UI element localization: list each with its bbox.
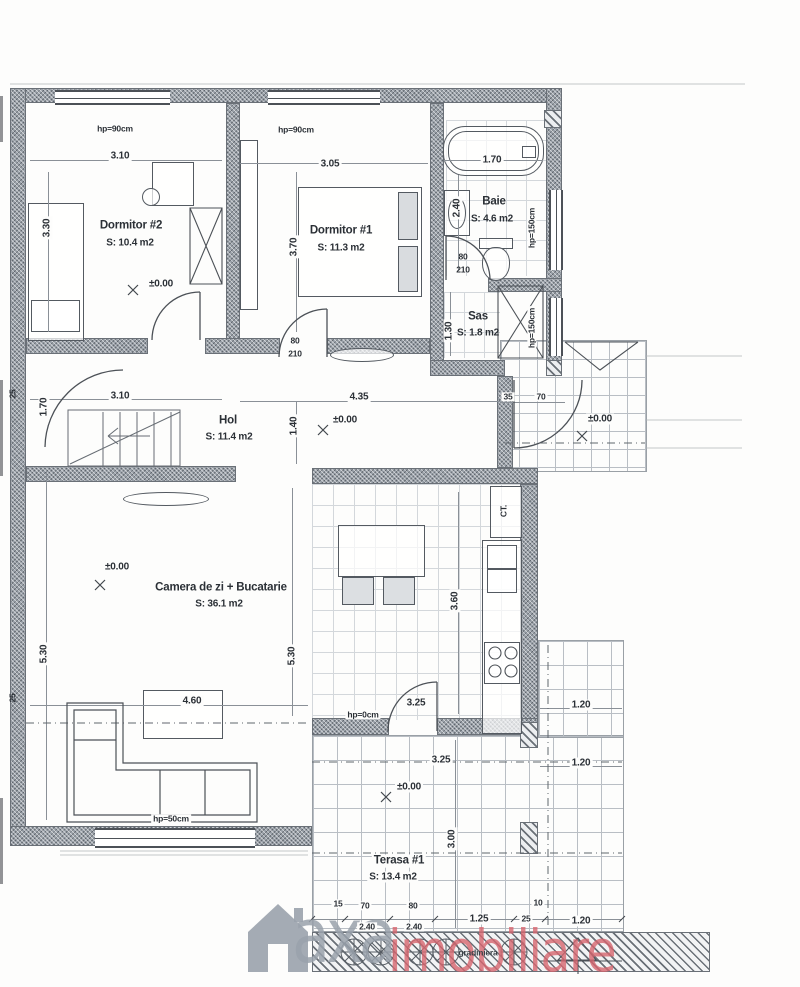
level-marker: [381, 792, 391, 802]
dim-door-baie-height: 210: [456, 265, 470, 274]
room-area-dormitor1: S: 11.3 m2: [318, 243, 365, 254]
dim-entry-jamb: 35: [501, 392, 514, 401]
dim-terasa-width: 3.25: [430, 755, 453, 766]
dim-entry-door: 70: [534, 392, 547, 401]
dim-sas-depth: 1.30: [444, 320, 455, 343]
dim-bottom-240a: 2.40: [357, 922, 377, 931]
dim-terasa-side-1: 1.20: [570, 700, 593, 711]
dim-edge-25a: 25: [8, 389, 17, 398]
cooktop-burner: [505, 647, 517, 659]
room-name-baie: Baie: [482, 196, 506, 209]
parapet-dormitor2: hp=90cm: [97, 124, 133, 133]
wardrobe-x-dormitor2: [190, 208, 222, 284]
level-hol: ±0.00: [331, 415, 359, 426]
planter-label: gradiniera: [458, 948, 497, 957]
room-name-terasa: Terasa #1: [372, 855, 426, 868]
stairs-direction-arrow: [108, 428, 150, 444]
room-area-dormitor2: S: 10.4 m2: [106, 238, 153, 249]
dim-bottom-125: 1.25: [468, 914, 491, 925]
dim-terasa-side-2: 1.20: [570, 758, 593, 769]
room-area-baie: S: 4.6 m2: [471, 214, 513, 225]
cooktop-burner: [489, 647, 501, 659]
door-arc-dormitor1: [279, 309, 327, 357]
dim-bottom-70: 70: [358, 901, 371, 910]
room-name-sas: Sas: [468, 311, 488, 324]
plant-symbol: [501, 939, 527, 965]
plan-linework: [0, 0, 800, 987]
dim-bottom-10: 10: [531, 898, 544, 907]
level-living: ±0.00: [105, 562, 129, 573]
level-marker: [318, 425, 328, 435]
dim-baie-depth: 2.40: [452, 197, 463, 220]
cooktop-burner: [489, 665, 501, 677]
door-arc-entry: [514, 380, 582, 448]
parapet-dormitor1: hp=90cm: [278, 125, 314, 134]
dim-bottom-240b: 2.40: [404, 922, 424, 931]
dim-bottom-25: 25: [519, 914, 532, 923]
dim-terasa-depth: 3.00: [447, 828, 458, 851]
room-area-hol: S: 11.4 m2: [206, 432, 253, 443]
dim-living-depth-left: 5.30: [39, 643, 50, 666]
plant-symbol: [368, 939, 394, 965]
dim-door-dormitor1-height: 210: [288, 349, 302, 358]
level-marker: [577, 431, 587, 441]
dim-bottom-15: 15: [331, 899, 344, 908]
sofa-cushions: [74, 740, 205, 815]
sofa-outline: [67, 703, 257, 822]
plant-symbol: [341, 939, 367, 965]
parapet-terasa-door: hp=0cm: [345, 710, 380, 719]
dim-door-dormitor1-width: 80: [290, 336, 299, 345]
dim-hol-length: 4.35: [348, 392, 371, 403]
floor-plan: axa imobiliare Dormitor #2 S: 10.4 m2 Do…: [0, 0, 800, 987]
level-entrance: ±0.00: [586, 414, 614, 425]
dim-living-depth: 5.30: [287, 645, 298, 668]
parapet-living: hp=50cm: [151, 814, 191, 823]
dim-dormitor1-depth: 3.70: [289, 236, 300, 259]
room-name-dormitor1: Dormitor #1: [310, 225, 372, 238]
stairs-break-line: [70, 412, 180, 464]
dim-dormitor1-width: 3.05: [319, 159, 342, 170]
canopy-mark: [565, 342, 638, 370]
dim-dormitor2-width: 3.10: [109, 151, 132, 162]
level-marker: [128, 285, 138, 295]
cooktop-burner: [505, 665, 517, 677]
room-area-terasa: S: 13.4 m2: [367, 872, 418, 883]
dim-door-baie-width: 80: [458, 252, 467, 261]
room-area-living: S: 36.1 m2: [195, 599, 242, 610]
parapet-sas: hp=150cm: [527, 306, 536, 350]
dim-edge-25b: 25: [8, 693, 17, 702]
level-dormitor2: ±0.00: [149, 279, 173, 290]
boiler-label: CT.: [499, 505, 508, 517]
parapet-baie: hp=150cm: [527, 206, 536, 250]
bench-triangle: [540, 938, 622, 974]
dim-terasa-door: 3.25: [405, 698, 428, 709]
dim-hol-width: 3.10: [109, 391, 132, 402]
opening-arc-hol: [45, 370, 123, 447]
door-arc-dormitor2: [152, 292, 200, 340]
dim-dormitor2-depth: 3.30: [42, 217, 53, 240]
dim-baie-width: 1.70: [481, 155, 504, 166]
dim-dining-depth: 3.60: [450, 590, 461, 613]
dim-living-width: 4.60: [181, 696, 204, 707]
room-area-sas: S: 1.8 m2: [457, 328, 499, 339]
room-name-hol: Hol: [219, 415, 237, 428]
dim-hol-opening: 1.70: [39, 396, 50, 419]
room-name-living: Camera de zi + Bucatarie: [155, 582, 287, 595]
dim-terasa-side-3: 1.20: [570, 916, 593, 927]
plant-symbol: [407, 939, 433, 965]
room-name-dormitor2: Dormitor #2: [100, 220, 162, 233]
plant-symbol: [433, 939, 459, 965]
dim-bottom-80: 80: [406, 901, 419, 910]
dim-hol-depth: 1.40: [289, 415, 300, 438]
level-marker: [95, 580, 105, 590]
level-terasa: ±0.00: [395, 782, 423, 793]
